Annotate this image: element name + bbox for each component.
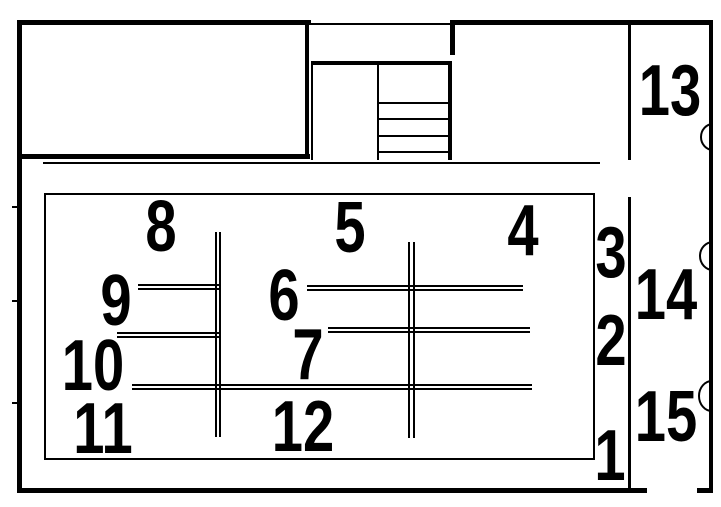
lift-post-line: [408, 242, 410, 438]
wall-stairwell-right: [448, 61, 452, 160]
bay-label-12: 12: [272, 391, 334, 463]
bay-label-2: 2: [595, 305, 626, 377]
wall-frame-bottom: [17, 488, 647, 493]
bench-line: [307, 289, 523, 291]
door-swing-icon: [698, 380, 713, 412]
wall-upper-room-bottom: [17, 154, 310, 159]
bench-line: [132, 384, 532, 386]
bench-line: [307, 285, 523, 287]
wall-frame-top-middle: [309, 23, 452, 25]
lift-post-line: [219, 232, 221, 437]
wall-right-corridor: [628, 197, 631, 490]
wall-room13-left: [628, 23, 631, 160]
wall-tick: [12, 206, 17, 208]
bay-label-11: 11: [73, 393, 132, 465]
bay-label-4: 4: [507, 195, 538, 267]
bay-label-15: 15: [635, 381, 697, 453]
stair-step-line: [379, 102, 448, 104]
bench-line: [117, 332, 219, 334]
wall-upper-room-right: [305, 20, 309, 159]
bay-label-8: 8: [145, 191, 176, 263]
door-swing-icon: [700, 123, 714, 151]
bay-label-1: 1: [594, 420, 625, 492]
wall-stairwell-divider: [377, 65, 379, 160]
bench-line: [328, 327, 530, 329]
floor-plan: 1 2 3 4 5 6 7 8 9 10 11 12 13 14 15: [0, 0, 721, 507]
wall-upper-partition: [43, 162, 600, 164]
wall-frame-left: [17, 20, 22, 493]
bay-label-5: 5: [334, 192, 365, 264]
door-swing-icon: [699, 241, 714, 271]
bay-label-13: 13: [639, 55, 701, 127]
wall-stairwell-left: [311, 63, 313, 160]
lift-post-line: [215, 232, 217, 437]
bench-line: [328, 331, 530, 333]
stair-step-line: [379, 151, 448, 153]
bay-label-3: 3: [595, 217, 626, 289]
bay-label-14: 14: [635, 259, 697, 331]
lift-post-line: [413, 242, 415, 438]
wall-stairwell-top: [311, 61, 452, 65]
wall-tick: [12, 300, 17, 302]
wall-frame-top-left: [17, 20, 311, 25]
wall-frame-top-right: [450, 20, 713, 25]
bench-line: [117, 336, 219, 338]
wall-entry-stub: [450, 22, 455, 55]
stair-step-line: [379, 135, 448, 137]
bench-line: [138, 284, 219, 286]
stair-step-line: [379, 118, 448, 120]
wall-tick: [12, 402, 17, 404]
bay-label-7: 7: [292, 319, 323, 391]
bench-line: [138, 288, 219, 290]
wall-frame-bottom-right-stub: [697, 488, 713, 493]
